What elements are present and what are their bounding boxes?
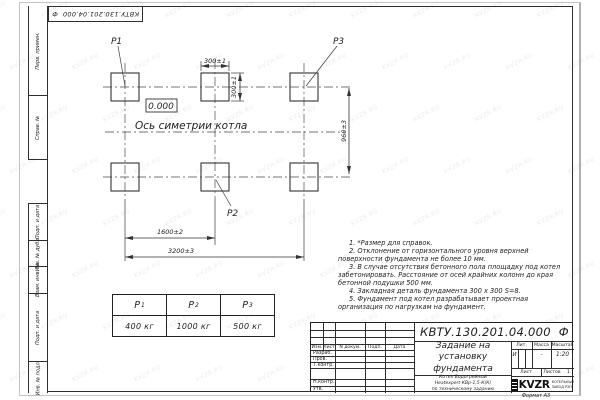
tb-header-ndoc: N докум. (335, 344, 365, 350)
leader-p3 (306, 46, 337, 86)
kvzr-caption-line2: ЗАВОД РЭП (552, 385, 574, 389)
p2-symbol: P (188, 300, 194, 311)
tb-row-utv: Утв. (311, 386, 335, 393)
title-block: КВТУ.130.201.04.000 Ф Изм. Лист N докум.… (310, 322, 573, 392)
dim-row-spacing: 960±3 (340, 120, 348, 142)
tb-line (525, 349, 526, 368)
load-table: P1 P2 P3 400 кг 1000 кг 500 кг (112, 294, 275, 337)
dim-col-spacing: 1600±2 (157, 228, 183, 236)
tb-line (518, 349, 519, 368)
dim-total-width: 3200±3 (168, 247, 194, 255)
tb-line (385, 323, 386, 393)
dim-pad-height: 300±1 (230, 76, 238, 98)
tb-row-tkontr: Т.контр. (311, 362, 335, 368)
note-1: 1. *Размер для справок. (338, 239, 570, 247)
tb-line (311, 330, 414, 331)
tb-title-line3: фундамента (433, 364, 493, 375)
load-p3-value: 500 кг (221, 316, 274, 336)
tb-masshtab-value: 1:20 (551, 349, 574, 361)
tb-doc-number: КВТУ.130.201.04.000 Ф (415, 323, 574, 341)
note-5: 5. Фундамент под котел разрабатывает про… (338, 295, 570, 311)
load-table-header-p1: P1 (113, 295, 167, 315)
tb-subtitle-line3: по техническому заданию (432, 387, 495, 393)
label-p2: P2 (227, 209, 238, 219)
tb-title-line2: установку (439, 352, 488, 363)
tb-header-data: Дата (385, 344, 414, 350)
load-table-header-p2: P2 (167, 295, 221, 315)
tb-header-listov: Листов (541, 368, 563, 376)
kvzr-logo-caption: КОТЕЛЬНЫЙ ЗАВОД РЭП (552, 380, 574, 389)
tb-row-nkontr: Н.контр. (311, 379, 335, 386)
tb-header-lit: Лит. (511, 341, 532, 349)
load-table-value-row: 400 кг 1000 кг 500 кг (113, 316, 274, 336)
tb-logo-area: KVZR КОТЕЛЬНЫЙ ЗАВОД РЭП (511, 376, 574, 393)
kvzr-logo-icon (511, 379, 518, 391)
tb-line (335, 323, 336, 393)
label-p1: P1 (111, 37, 122, 47)
load-table-header-p3: P3 (221, 295, 274, 315)
p3-sub: 3 (249, 302, 253, 309)
load-table-header-row: P1 P2 P3 (113, 295, 274, 316)
drawing-sheet: KVZR.RUKVZR.RUKVZR.RUKVZR.RUKVZR.RUKVZR.… (0, 0, 600, 400)
p3-symbol: P (242, 300, 248, 311)
load-p2-value: 1000 кг (167, 316, 221, 336)
note-3: 3. В случае отсутствия бетонного пола пл… (338, 263, 570, 287)
tb-line (311, 368, 414, 369)
tb-header-list2: Лист (511, 368, 541, 376)
p2-sub: 2 (195, 302, 199, 309)
tb-header-podp: Подп. (365, 344, 385, 350)
notes-block: 1. *Размер для справок. 2. Отклонение от… (338, 239, 570, 311)
tb-product-name: Котел Водогрейный Heatexpert-КВр-1,5-К(К… (415, 375, 511, 393)
tb-massa-value: - (532, 349, 551, 361)
tb-listov-value: 1 (563, 368, 574, 376)
tb-title-line1: Задание на (436, 341, 491, 352)
kvzr-logo-text: KVZR (519, 379, 550, 391)
p1-sub: 1 (141, 302, 145, 309)
note-4: 4. Закладная деталь фундамента 300 х 300… (338, 287, 570, 295)
tb-header-massa: Масса (532, 341, 551, 349)
tb-lit-value: И (511, 349, 518, 361)
note-2: 2. Отклонение от горизонтального уровня … (338, 247, 570, 263)
load-p1-value: 400 кг (113, 316, 167, 336)
tb-line (311, 337, 414, 338)
dim-pad-width: 300±1 (204, 57, 226, 65)
p1-symbol: P (134, 300, 140, 311)
tb-header-masshtab: Масштаб (551, 341, 574, 349)
leader-p1 (118, 46, 125, 86)
elevation-value: 0.000 (148, 102, 174, 112)
boiler-axis-label: Ось симетрии котла (135, 120, 247, 132)
label-p3: P3 (333, 37, 344, 47)
format-label: Формат А3 (505, 392, 567, 400)
tb-line (365, 323, 366, 393)
tb-document-name: Задание на установку фундамента (415, 341, 511, 375)
